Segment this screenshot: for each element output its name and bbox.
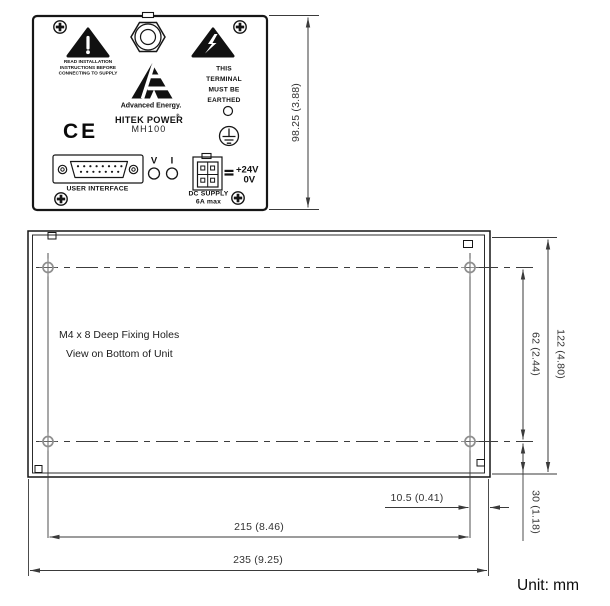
warning-note-line-1: READ INSTALLATION — [64, 59, 113, 64]
screw-icon — [232, 192, 244, 204]
front-panel-view: READ INSTALLATION INSTRUCTIONS BEFORE CO… — [33, 13, 267, 211]
dimension-hole-right-offset-label: 10.5 (0.41) — [391, 492, 444, 504]
ce-mark-icon: CE — [63, 120, 98, 143]
dc-negative-label: 0V — [244, 175, 256, 186]
dimension-overall-width-label: 235 (9.25) — [233, 554, 283, 566]
general-warning-icon — [68, 29, 108, 56]
earth-note-line-2: TERMINAL — [206, 76, 242, 83]
fixing-hole-icon — [39, 259, 57, 277]
user-interface-connector — [53, 155, 143, 183]
high-voltage-warning-icon — [193, 29, 233, 56]
dimension-hole-bottom-offset-label: 30 (1.18) — [530, 490, 542, 534]
corner-tab — [464, 241, 473, 248]
dsub-shell — [71, 162, 128, 178]
corner-tab — [477, 460, 485, 467]
engineering-drawing: READ INSTALLATION INSTRUCTIONS BEFORE CO… — [0, 0, 610, 606]
dimension-hole-horizontal-spacing: 215 (8.46) — [50, 521, 469, 537]
unit-label: Unit: mm — [517, 577, 579, 594]
brand-name: Advanced Energy. — [121, 103, 182, 110]
terminal-hole — [224, 107, 233, 116]
earth-note-line-3: MUST BE — [208, 87, 239, 94]
dimension-hole-horizontal-spacing-label: 215 (8.46) — [234, 521, 284, 533]
model-number: MH100 — [131, 124, 166, 134]
current-indicator-label: I — [171, 156, 174, 167]
dc-supply-label: DC SUPPLY — [188, 191, 228, 198]
cable-gland-icon — [131, 13, 165, 52]
voltage-led — [149, 168, 160, 179]
dc-supply-connector — [193, 154, 222, 191]
corner-tab — [48, 233, 56, 240]
fixing-hole-icon — [461, 433, 479, 451]
jack-screw-icon — [58, 165, 66, 173]
bottom-view: M4 x 8 Deep Fixing Holes View on Bottom … — [28, 231, 533, 538]
front-panel-height-dimension: 98.25 (3.88) — [269, 16, 319, 210]
fixing-hole-icon — [461, 259, 479, 277]
earth-terminal-icon — [220, 127, 239, 146]
screw-icon — [55, 193, 67, 205]
fixing-hole-icon — [39, 433, 57, 451]
dimension-overall-height-label: 122 (4.80) — [555, 329, 567, 379]
dimension-overall-height: 122 (4.80) — [492, 238, 567, 475]
advanced-energy-logo — [132, 64, 174, 99]
voltage-indicator-label: V — [151, 156, 158, 167]
user-interface-label: USER INTERFACE — [66, 186, 128, 193]
drawing-canvas: READ INSTALLATION INSTRUCTIONS BEFORE CO… — [0, 0, 610, 606]
jack-screw-center — [61, 168, 64, 171]
dimension-hole-vertical-spacing-label: 62 (2.44) — [530, 332, 542, 376]
dimension-front-height-label: 98.25 (3.88) — [290, 83, 302, 142]
warning-note-line-3: CONNECTING TO SUPPLY — [59, 70, 119, 75]
earth-note-line-1: THIS — [216, 66, 232, 73]
current-led — [167, 168, 178, 179]
bottom-view-dimensions: 122 (4.80) 62 (2.44) 30 (1.18) 10.5 (0.4… — [29, 238, 567, 577]
dc-supply-rating: 6A max — [196, 199, 221, 206]
dimension-hole-right-offset: 10.5 (0.41) — [385, 492, 509, 508]
earth-note-line-4: EARTHED — [207, 97, 240, 104]
dc-polarity-icon — [225, 170, 234, 176]
corner-tab — [35, 466, 42, 473]
screw-icon — [234, 21, 246, 33]
bottom-view-note-line-1: M4 x 8 Deep Fixing Holes — [59, 329, 179, 341]
dimension-hole-vertical-spacing: 62 (2.44) — [523, 270, 542, 440]
dimension-hole-bottom-offset: 30 (1.18) — [523, 444, 542, 542]
bottom-view-note-line-2: View on Bottom of Unit — [66, 348, 173, 360]
dsub-pins — [77, 165, 123, 173]
jack-screw-icon — [129, 165, 137, 173]
jack-screw-center — [132, 168, 135, 171]
warning-note-line-2: INSTRUCTIONS BEFORE — [60, 65, 116, 70]
screw-icon — [54, 21, 66, 33]
